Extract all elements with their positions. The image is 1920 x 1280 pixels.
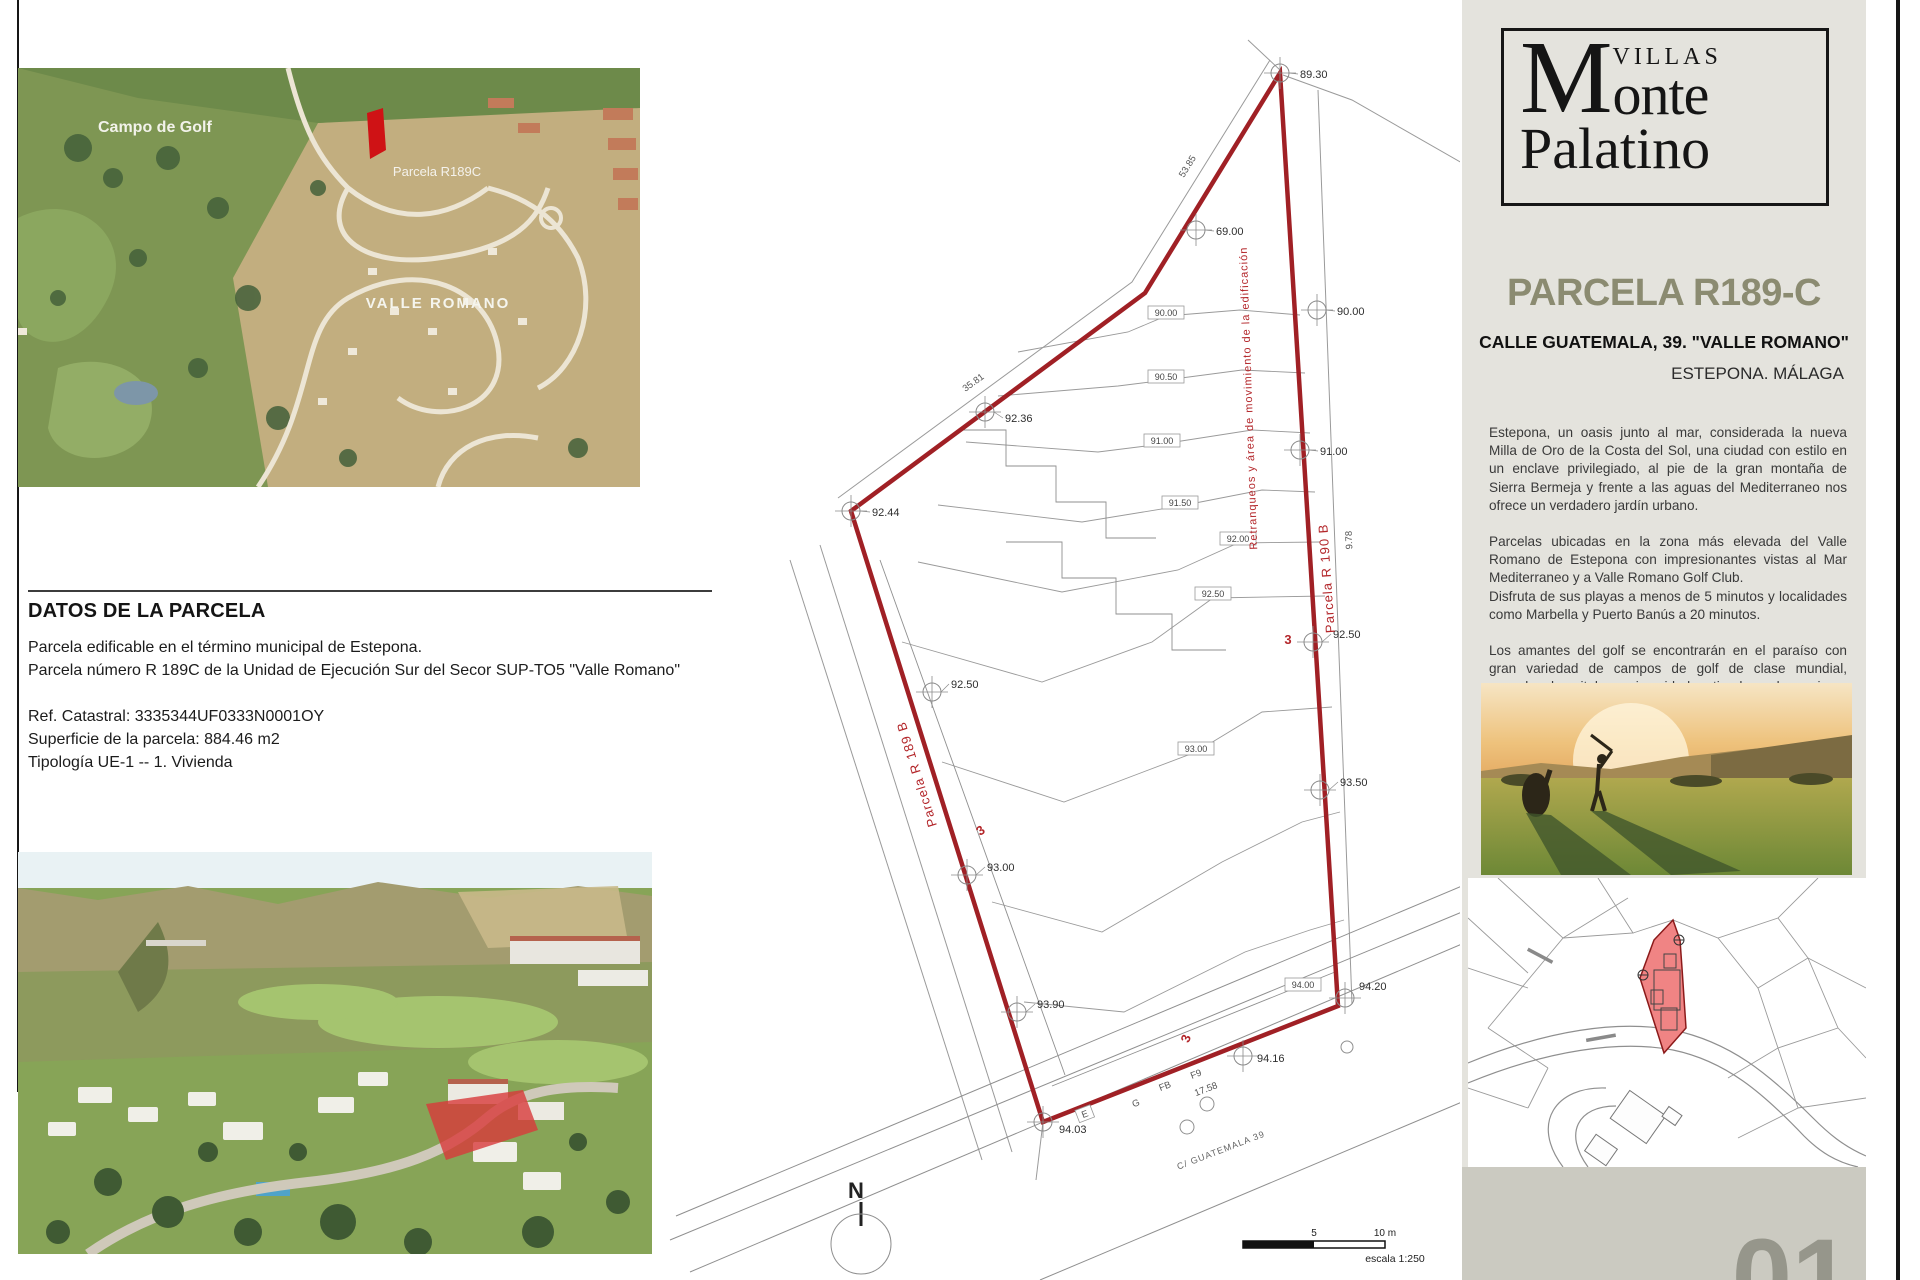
logo-palatino: Palatino bbox=[1520, 120, 1826, 178]
satellite-map: Campo de Golf Parcela R189C VALLE ROMANO bbox=[18, 68, 640, 487]
contour-label: 90.00 bbox=[1148, 306, 1184, 319]
parcel-area-label: Retranqueos y área de movimiento de la e… bbox=[1238, 246, 1261, 549]
svg-text:91.00: 91.00 bbox=[1151, 436, 1174, 446]
datos-line: Parcela número R 189C de la Unidad de Ej… bbox=[28, 660, 712, 683]
contour-label: 94.00 bbox=[1285, 978, 1321, 991]
spot-elevation: 92.50 bbox=[916, 676, 979, 708]
logo-monte-initial: M bbox=[1520, 37, 1610, 118]
dimension-label: 17.58 bbox=[1193, 1080, 1219, 1099]
page-number: 01 bbox=[1732, 1223, 1852, 1280]
spot-elevation-label: 93.00 bbox=[987, 862, 1015, 874]
contour-label: 90.50 bbox=[1148, 370, 1184, 383]
map-label-golf: Campo de Golf bbox=[98, 119, 212, 136]
spot-elevation-label: 92.36 bbox=[1005, 413, 1033, 425]
dimension-label: 3 bbox=[973, 822, 988, 838]
dimension-label: 3 bbox=[1284, 632, 1291, 647]
spot-elevation-label: 93.50 bbox=[1340, 777, 1368, 789]
dimension-label: 53.85 bbox=[1177, 154, 1199, 180]
svg-text:93.00: 93.00 bbox=[1185, 744, 1208, 754]
footer-block: 01 bbox=[1462, 1167, 1866, 1280]
sky bbox=[18, 852, 652, 888]
datos-line: Ref. Catastral: 3335344UF0333N0001OY bbox=[28, 706, 712, 729]
dimension-label: 3 bbox=[1177, 1032, 1194, 1044]
brand-logo: M VILLAS onte Palatino bbox=[1501, 28, 1829, 206]
page-border-right bbox=[1896, 0, 1900, 1280]
plan-annotations: 89.3069.0090.0091.0092.3692.4492.5092.50… bbox=[835, 57, 1387, 1172]
golf-photo bbox=[1481, 683, 1852, 875]
scale-bar: 5 10 m escala 1:250 bbox=[1243, 1228, 1425, 1265]
viaduct bbox=[146, 940, 206, 946]
svg-text:G: G bbox=[1131, 1097, 1142, 1110]
dimension-label: G bbox=[1131, 1097, 1142, 1110]
logo-monte-rest: onte bbox=[1612, 71, 1721, 119]
datos-line: Superficie de la parcela: 884.46 m2 bbox=[28, 729, 712, 752]
spot-elevation: 93.50 bbox=[1304, 774, 1368, 806]
pond bbox=[114, 381, 158, 405]
spot-elevation-label: 91.00 bbox=[1320, 446, 1348, 458]
svg-text:FB: FB bbox=[1157, 1079, 1172, 1094]
datos-line: Parcela edificable en el término municip… bbox=[28, 637, 712, 660]
svg-text:35.81: 35.81 bbox=[961, 372, 987, 395]
map-label-parcel: Parcela R189C bbox=[393, 164, 481, 179]
spot-elevation-label: 94.16 bbox=[1257, 1053, 1285, 1065]
svg-text:3: 3 bbox=[1177, 1032, 1194, 1044]
street-label: C/ GUATEMALA 39 bbox=[1176, 1129, 1267, 1172]
parcel-title: PARCELA R189-C bbox=[1462, 272, 1866, 315]
description-paragraph: Disfruta de sus playas a menos de 5 minu… bbox=[1489, 588, 1847, 624]
spot-elevation-label: 90.00 bbox=[1337, 306, 1365, 318]
parcel-address: CALLE GUATEMALA, 39. "VALLE ROMANO" bbox=[1462, 332, 1866, 353]
datos-section: DATOS DE LA PARCELA Parcela edificable e… bbox=[28, 590, 712, 775]
svg-text:94.00: 94.00 bbox=[1292, 980, 1315, 990]
section-title: DATOS DE LA PARCELA bbox=[28, 600, 712, 623]
dimension-label: 9.78 bbox=[1344, 531, 1356, 550]
scale-tick-10m: 10 m bbox=[1374, 1228, 1396, 1239]
spot-elevation: 91.00 bbox=[1284, 434, 1348, 466]
brochure-page: Campo de Golf Parcela R189C VALLE ROMANO… bbox=[0, 0, 1920, 1280]
neighbor-lines bbox=[790, 40, 1460, 1180]
cadastral-map bbox=[1468, 878, 1866, 1167]
contour-label: 92.50 bbox=[1195, 587, 1231, 600]
spot-elevation-label: 89.30 bbox=[1300, 69, 1328, 81]
scale-caption: escala 1:250 bbox=[1365, 1253, 1425, 1265]
dimension-label: F9 bbox=[1189, 1068, 1203, 1082]
parcel-highlight bbox=[367, 108, 386, 159]
svg-text:3: 3 bbox=[973, 822, 988, 838]
contour-label: 93.00 bbox=[1178, 742, 1214, 755]
spot-elevation-label: 69.00 bbox=[1216, 226, 1244, 238]
svg-text:F9: F9 bbox=[1189, 1068, 1203, 1082]
north-letter: N bbox=[848, 1178, 864, 1203]
svg-text:9.78: 9.78 bbox=[1344, 531, 1356, 550]
svg-text:53.85: 53.85 bbox=[1177, 154, 1199, 180]
spot-elevation: 90.00 bbox=[1301, 294, 1365, 326]
contour-label: 91.00 bbox=[1144, 434, 1180, 447]
description-paragraph: Estepona, un oasis junto al mar, conside… bbox=[1489, 424, 1847, 515]
spot-elevation-label: 93.90 bbox=[1037, 999, 1065, 1011]
survey-plan: N 5 10 m escala 1:250 89.3069.0090.0091.… bbox=[660, 0, 1460, 1280]
svg-text:90.00: 90.00 bbox=[1155, 308, 1178, 318]
contour-lines bbox=[902, 310, 1344, 1012]
datos-line: Tipología UE-1 -- 1. Vivienda bbox=[28, 752, 712, 775]
svg-text:3: 3 bbox=[1284, 632, 1291, 647]
description-paragraph: Parcelas ubicadas en la zona más elevada… bbox=[1489, 533, 1847, 588]
spot-elevation-label: 92.50 bbox=[951, 679, 979, 691]
svg-text:17.58: 17.58 bbox=[1193, 1080, 1219, 1099]
parcel-location: ESTEPONA. MÁLAGA bbox=[1462, 364, 1844, 384]
setback-lines bbox=[880, 430, 1335, 1086]
north-arrow: N bbox=[831, 1178, 891, 1274]
dimension-label: 35.81 bbox=[961, 372, 987, 395]
scale-tick-5: 5 bbox=[1311, 1228, 1317, 1239]
street-lines bbox=[670, 886, 1460, 1280]
spot-elevation-label: 94.03 bbox=[1059, 1124, 1087, 1136]
aerial-photo bbox=[18, 852, 652, 1254]
svg-text:92.00: 92.00 bbox=[1227, 534, 1250, 544]
spot-elevation-label: 92.44 bbox=[872, 507, 900, 519]
svg-text:91.50: 91.50 bbox=[1169, 498, 1192, 508]
sidebar: M VILLAS onte Palatino PARCELA R189-C CA… bbox=[1462, 0, 1866, 1280]
svg-text:92.50: 92.50 bbox=[1202, 589, 1225, 599]
dimension-label: FB bbox=[1157, 1079, 1172, 1094]
section-rule bbox=[28, 590, 712, 592]
svg-text:90.50: 90.50 bbox=[1155, 372, 1178, 382]
spot-elevation-label: 94.20 bbox=[1359, 981, 1387, 993]
map-label-valle-romano: VALLE ROMANO bbox=[366, 295, 511, 312]
contour-label: 91.50 bbox=[1162, 496, 1198, 509]
